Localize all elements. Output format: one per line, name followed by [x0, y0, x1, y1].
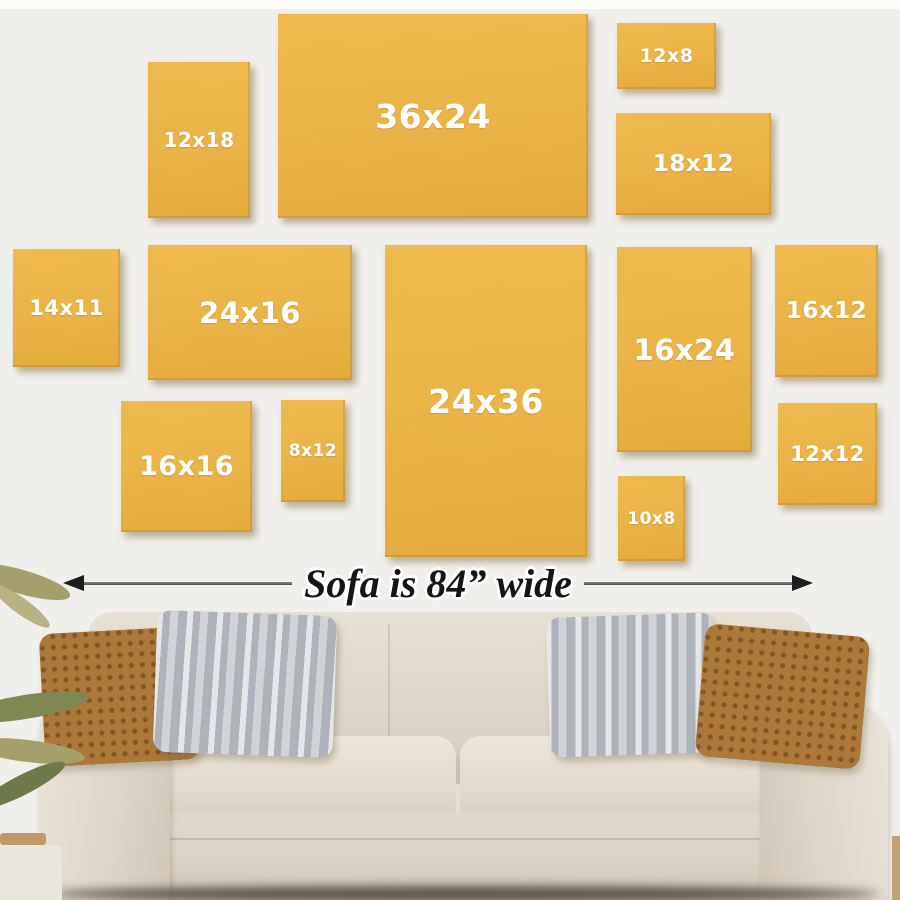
frame-12x8: 12x8 — [617, 23, 716, 89]
frame-36x24: 36x24 — [278, 14, 588, 218]
frame-24x16: 24x16 — [148, 245, 352, 380]
frame-size-label: 24x36 — [428, 382, 544, 421]
pillow-gray-left — [153, 610, 338, 758]
arrowhead-right-icon — [792, 575, 813, 591]
frame-size-label: 12x8 — [640, 45, 694, 67]
frame-8x12: 8x12 — [281, 400, 345, 502]
frame-18x12: 18x12 — [616, 113, 771, 215]
pillow-brown-right — [695, 623, 871, 770]
frame-12x18: 12x18 — [148, 62, 250, 218]
sofa — [38, 606, 892, 900]
frame-size-label: 36x24 — [375, 97, 491, 136]
sofa-width-dimension: Sofa is 84” wide — [63, 564, 813, 602]
frame-size-label: 8x12 — [289, 441, 337, 461]
frame-size-label: 16x12 — [786, 298, 867, 324]
frame-16x24: 16x24 — [617, 247, 752, 452]
floor — [0, 845, 62, 900]
frame-14x11: 14x11 — [13, 249, 120, 367]
sofa-floor-shadow — [48, 886, 880, 900]
frame-size-label: 16x24 — [634, 333, 736, 367]
frame-24x36: 24x36 — [385, 245, 587, 557]
pillow-gray-right — [546, 612, 719, 758]
frame-size-label: 10x8 — [627, 509, 675, 529]
dimension-line-left — [84, 582, 292, 585]
dimension-line-right — [584, 582, 792, 585]
canvas-size-guide-photo: 12x18 36x24 12x8 18x12 14x11 24x16 24x36… — [0, 0, 900, 900]
frame-size-label: 14x11 — [29, 296, 104, 320]
wood-table-edge — [892, 836, 900, 900]
frame-size-label: 16x16 — [139, 451, 234, 482]
frame-16x12: 16x12 — [775, 245, 878, 377]
photo-top-margin — [0, 0, 900, 9]
frame-size-label: 24x16 — [199, 296, 301, 330]
frame-size-label: 18x12 — [653, 151, 734, 177]
frame-size-label: 12x12 — [790, 442, 865, 466]
plant-twig — [0, 833, 46, 845]
sofa-width-note: Sofa is 84” wide — [304, 560, 572, 607]
frame-12x12: 12x12 — [778, 403, 877, 505]
frame-16x16: 16x16 — [121, 401, 252, 532]
frame-size-label: 12x18 — [163, 128, 234, 152]
frame-10x8: 10x8 — [618, 476, 685, 561]
